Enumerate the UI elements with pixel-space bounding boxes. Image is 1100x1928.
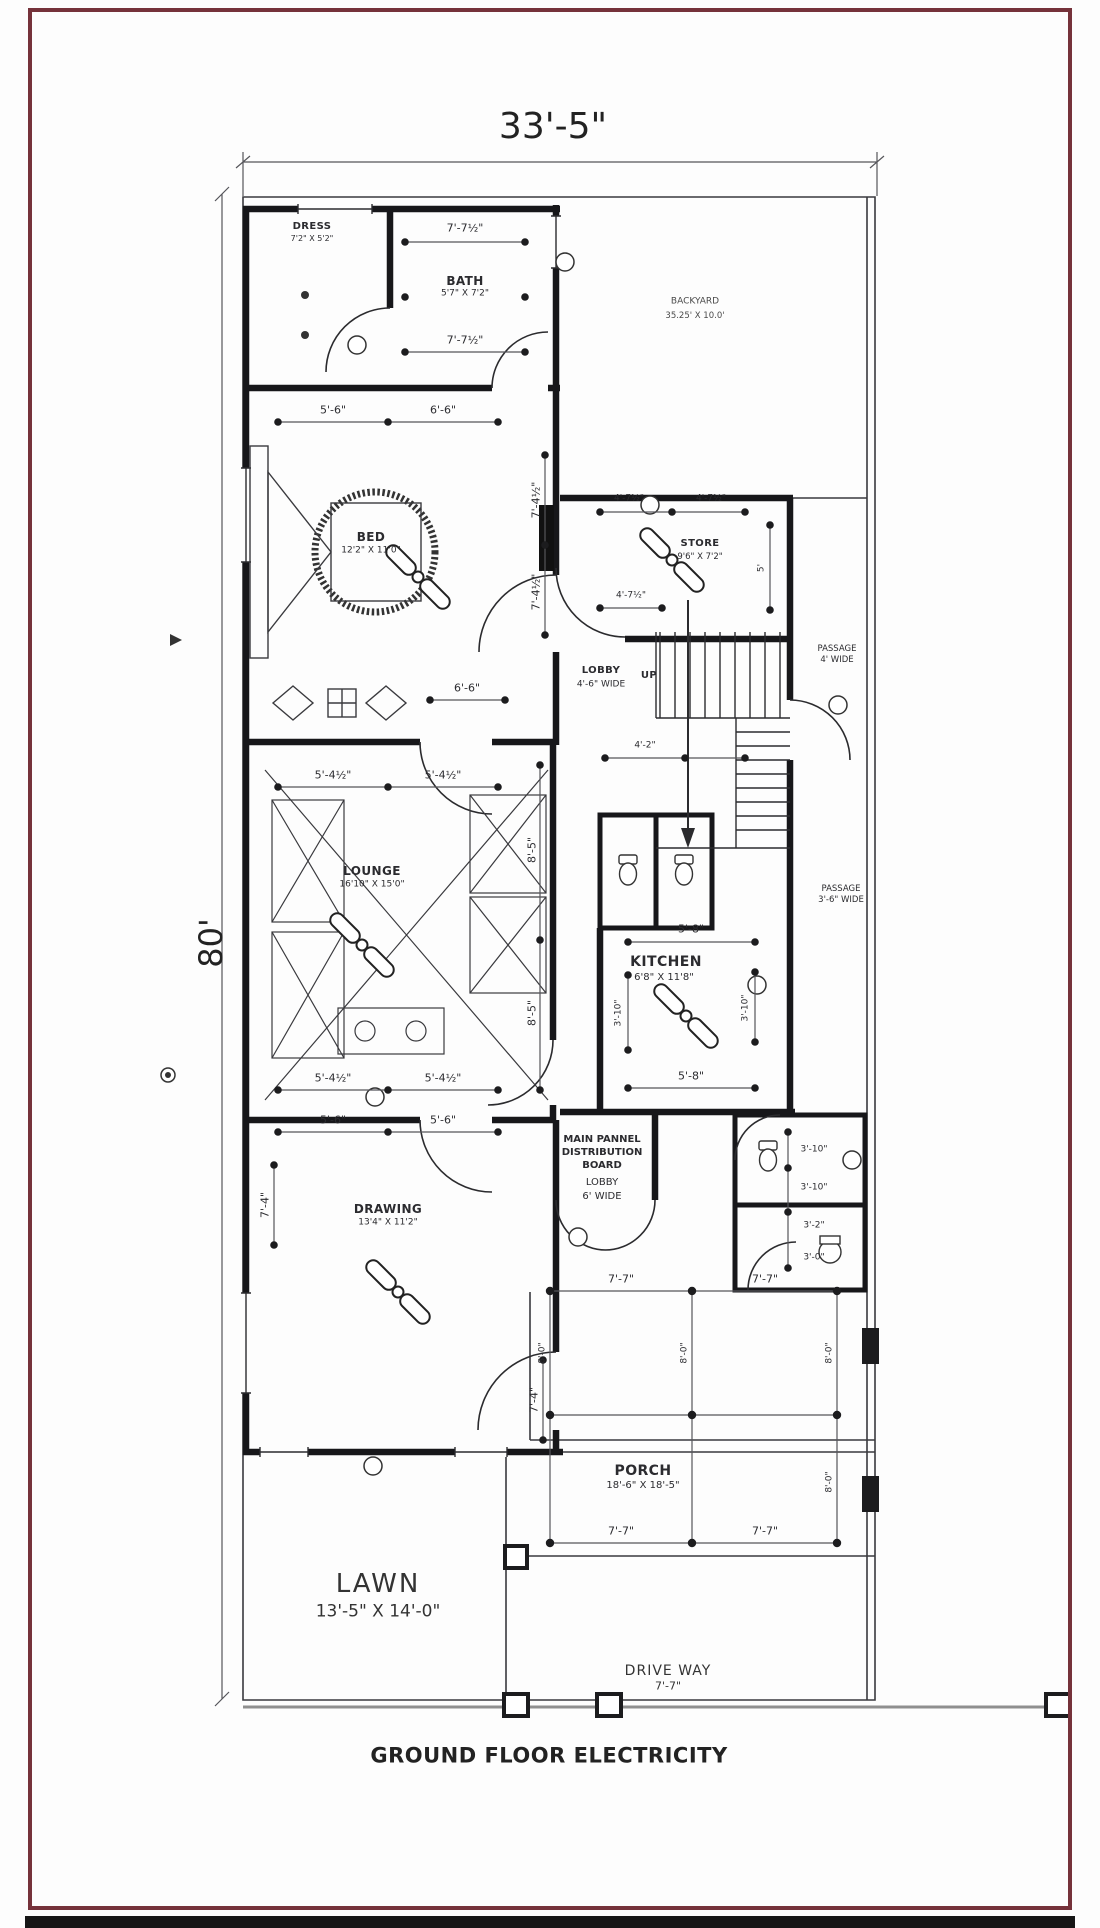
dim-porch-bottom-right: 7'-7" [752, 1526, 778, 1537]
door-arcs [326, 308, 850, 1430]
leader-mark [170, 634, 182, 646]
area-porch-size: 18'-6" X 18'-5" [606, 1481, 679, 1491]
gate-post [864, 1478, 877, 1510]
dim-lounge-bottom-left: 5'-4½" [315, 1073, 352, 1084]
room-drawing-size: 13'4" X 11'2" [358, 1219, 417, 1228]
room-lobby1-name: LOBBY [582, 666, 620, 676]
dim-porch-v1: 8'-0" [539, 1342, 548, 1363]
room-lobby2-name: LOBBY [586, 1178, 618, 1188]
dim-lounge-top-left: 5'-4½" [315, 770, 352, 781]
tv-unit [338, 1008, 444, 1054]
area-driveway-size: 7'-7" [655, 1681, 681, 1692]
dim-kitchen-top: 5'-8" [678, 924, 704, 935]
dim-porch-v2: 8'-0" [681, 1342, 690, 1363]
dim-bath2-4: 3'-0" [803, 1254, 824, 1263]
fan-icon [363, 1257, 432, 1326]
dim-porch-top-right: 7'-7" [752, 1274, 778, 1285]
stair-direction-arrow [681, 828, 695, 848]
room-bath-size: 5'7" X 7'2" [441, 290, 489, 299]
dim-porch-bottom-left: 7'-7" [608, 1526, 634, 1537]
toilet-icon [675, 855, 693, 885]
dim-bath2-2: 3'-10" [800, 1184, 827, 1193]
room-bed-size: 12'2" X 11'0" [341, 547, 400, 556]
area-lawn-name: LAWN [336, 1571, 421, 1597]
dim-bed-right-1: 7'-4½" [531, 482, 542, 519]
dim-store-bottom: 4'-7½" [616, 592, 646, 601]
dim-bed-door: 6'-6" [454, 683, 480, 694]
area-driveway-name: DRIVE WAY [625, 1664, 712, 1678]
room-dress-size: 7'2" X 5'2" [291, 235, 334, 243]
room-lobby1-size: 4'-6" WIDE [577, 681, 625, 690]
overall-width-dim: 33'-5" [499, 109, 607, 145]
area-lawn-size: 13'-5" X 14'-0" [316, 1604, 441, 1621]
dim-kitchen-bottom: 5'-8" [678, 1071, 704, 1082]
dim-drawing-top-right: 5'-6" [430, 1115, 456, 1126]
toilet-icon [619, 855, 637, 885]
lounge-furniture [265, 770, 548, 1100]
dim-store-top-left: 4'-7½" [614, 495, 644, 504]
columns [504, 1330, 1070, 1716]
dim-kitchen-left: 3'-10" [615, 999, 624, 1026]
area-backyard-name: BACKYARD [671, 298, 719, 307]
passage1-size: 4' WIDE [820, 656, 853, 665]
room-kitchen-name: KITCHEN [630, 955, 702, 969]
dim-bath-top: 7'-7½" [447, 223, 484, 234]
dim-lounge-bottom-right: 5'-4½" [425, 1073, 462, 1084]
room-dress-name: DRESS [293, 222, 332, 232]
dim-bath-bottom: 7'-7½" [447, 335, 484, 346]
main-panel-line2: DISTRIBUTION [562, 1148, 643, 1158]
room-lobby2-size: 6' WIDE [582, 1192, 621, 1202]
passage2-size: 3'-6" WIDE [818, 896, 864, 905]
passage2-name: PASSAGE [822, 885, 861, 894]
dim-store-top-right: 4'-7½" [696, 495, 726, 504]
gate-post [864, 1330, 877, 1362]
floorplan-sheet: 33'-5" 80' DRESS 7'2" X 5'2" BATH 5'7" X… [0, 0, 1100, 1928]
overall-height-dim: 80' [195, 918, 227, 968]
main-panel-line1: MAIN PANNEL [563, 1135, 640, 1145]
dim-lounge-right-1: 8'-5" [527, 837, 538, 863]
dim-lounge-top-right: 5'-4½" [425, 770, 462, 781]
dim-store-right: 5' [758, 564, 767, 572]
room-store-size: 9'6" X 7'2" [677, 553, 722, 562]
windows [241, 204, 561, 1457]
room-lounge-size: 16'10" X 15'0" [339, 881, 404, 890]
area-backyard-size: 35.25' X 10.0' [665, 312, 724, 321]
floorplan-linework [0, 0, 1100, 1928]
room-store-name: STORE [680, 539, 719, 549]
dim-lounge-right-2: 8'-5" [527, 1000, 538, 1026]
main-panel-line3: BOARD [582, 1161, 622, 1171]
room-kitchen-size: 6'8" X 11'8" [634, 973, 694, 983]
room-bed-name: BED [357, 531, 386, 543]
toilet-icon [759, 1141, 777, 1171]
dim-bed-top-right: 6'-6" [430, 405, 456, 416]
dim-drawing-left: 7'-4" [260, 1192, 271, 1218]
dim-porch-v4: 8'-0" [826, 1471, 835, 1492]
dim-kitchen-right: 3'-10" [742, 994, 751, 1021]
bottom-strip [25, 1916, 1075, 1928]
passage1-name: PASSAGE [818, 645, 857, 654]
dim-porch-v3: 8'-0" [826, 1342, 835, 1363]
bed-furniture [250, 291, 554, 720]
room-lounge-name: LOUNGE [343, 865, 401, 877]
dim-bath2-1: 3'-10" [800, 1146, 827, 1155]
dim-drawing-top-left: 5'-6" [320, 1115, 346, 1126]
dim-bed-right-2: 7'-4½" [531, 574, 542, 611]
room-bath-name: BATH [446, 275, 483, 287]
dim-porch-top-left: 7'-7" [608, 1274, 634, 1285]
lounge-cross [265, 770, 548, 1100]
fan-icon [327, 910, 396, 979]
dim-bath2-3: 3'-2" [803, 1222, 824, 1231]
dim-drawing-right: 7'-4" [529, 1387, 540, 1413]
dim-hall-top: 4'-2" [634, 742, 655, 751]
dim-bed-top-left: 5'-6" [320, 405, 346, 416]
sheet-title: GROUND FLOOR ELECTRICITY [370, 1746, 727, 1767]
room-drawing-name: DRAWING [354, 1203, 422, 1215]
sanitary-fixtures [619, 855, 841, 1263]
fan-icon [651, 981, 720, 1050]
area-porch-name: PORCH [615, 1464, 672, 1478]
stairs-up-label: UP [641, 671, 657, 681]
